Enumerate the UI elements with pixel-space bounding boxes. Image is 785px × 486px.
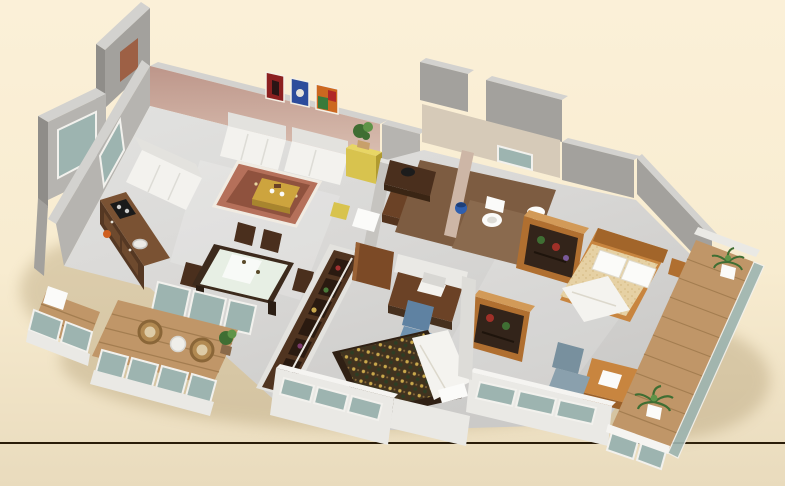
floor-plan-render — [0, 0, 785, 486]
wicker-chair — [191, 339, 213, 361]
blue-bucket — [455, 202, 467, 214]
painting-blue-motif — [296, 89, 304, 97]
orange-pot — [103, 230, 111, 238]
kitchen-sink — [133, 240, 147, 249]
apartment-3d-scene — [0, 0, 785, 486]
round-table — [171, 337, 186, 352]
painting-multicolor-motif — [318, 96, 328, 110]
black-basin — [401, 168, 415, 177]
painting-red-figure — [272, 80, 279, 96]
painting-multicolor-motif2 — [328, 90, 336, 102]
utility-block-left-face — [38, 116, 48, 208]
wicker-chair — [139, 321, 161, 343]
table-leg — [268, 300, 276, 316]
